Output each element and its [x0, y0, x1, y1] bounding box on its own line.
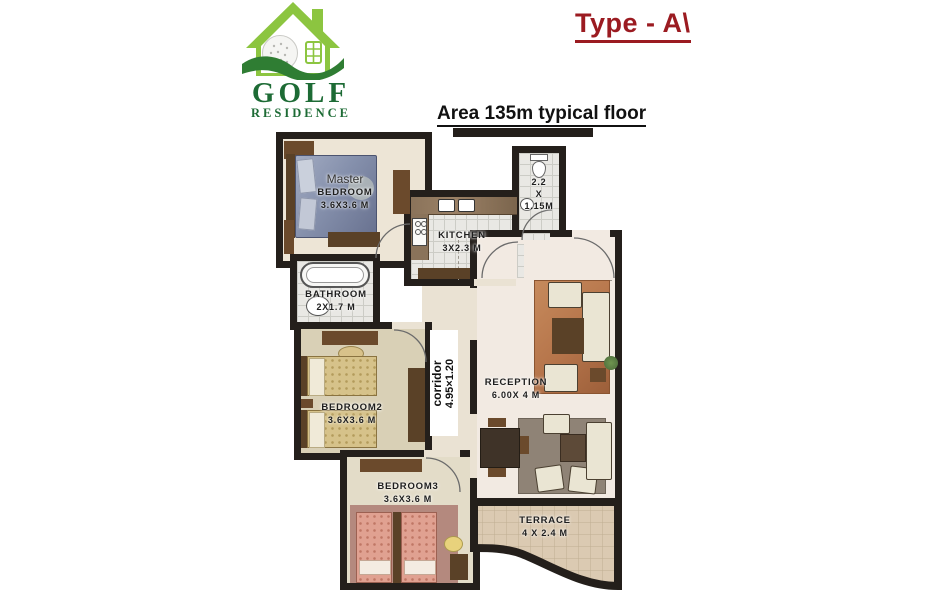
floor-plan: Master BEDROOM 3.6X3.6 M BATHROOM 2X1.7 … [272, 128, 640, 590]
master-bedroom-label: Master BEDROOM 3.6X3.6 M [285, 172, 405, 211]
floorplan-page: GOLF RESIDENCE Type - A\ Area 135m typic… [0, 0, 940, 590]
bathroom-label: BATHROOM 2X1.7 M [292, 288, 380, 313]
brand-subname: RESIDENCE [240, 106, 362, 120]
brand-logo: GOLF RESIDENCE [240, 0, 362, 120]
corridor-label-strip: corridor 4.95×1.20 [430, 330, 458, 436]
golf-house-icon [240, 0, 346, 80]
bedroom2-label: BEDROOM2 3.6X3.6 M [298, 401, 406, 426]
terrace-label: TERRACE 4 X 2.4 M [485, 514, 605, 539]
area-title: Area 135m typical floor [437, 103, 646, 127]
corridor-dims: 4.95×1.20 [445, 358, 457, 407]
wc-label: 2.2 X 1.15M [514, 176, 564, 212]
type-title: Type - A\ [575, 8, 691, 43]
kitchen-label: KITCHEN 3X2.3 M [412, 229, 512, 254]
bedroom3-label: BEDROOM3 3.6X3.6 M [348, 480, 468, 505]
reception-label: RECEPTION 6.00X 4 M [470, 376, 562, 401]
brand-name: GOLF [240, 80, 362, 106]
corridor-name: corridor [432, 358, 445, 407]
